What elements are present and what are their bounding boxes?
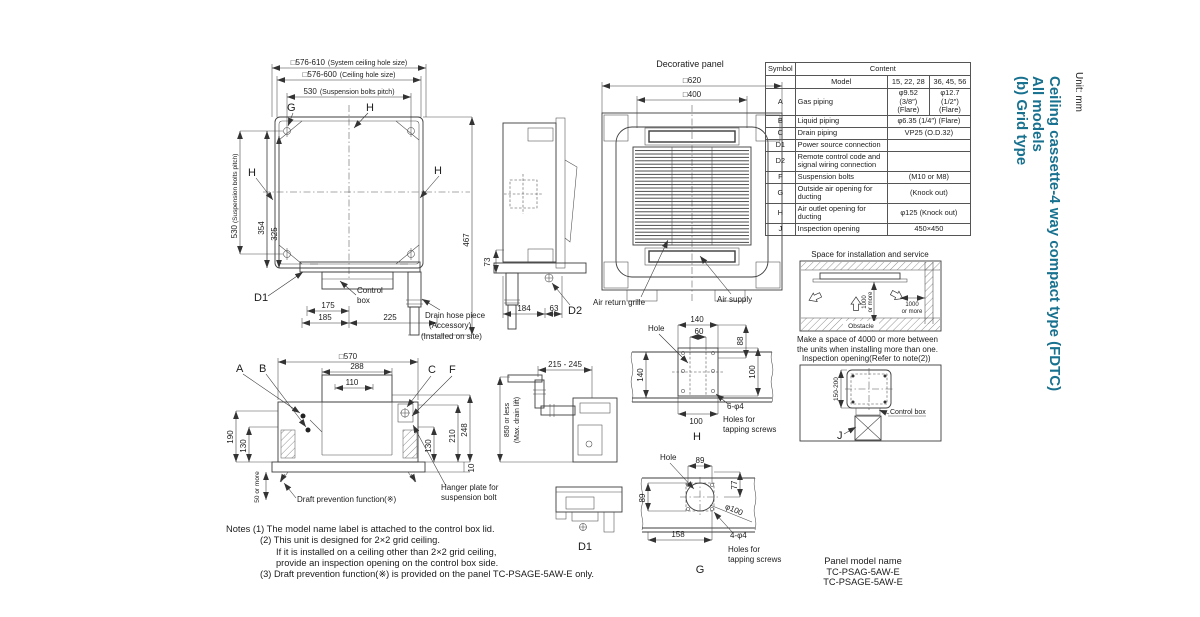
dim-400: □400 [683, 90, 702, 99]
decorative-panel-drawing: Decorative panel □620 □400 Air return gr… [593, 59, 782, 307]
svg-text:Holes for: Holes for [723, 415, 755, 424]
page-title: Ceiling cassette-4 way compact type (FDT… [1013, 76, 1063, 391]
g-knockout-detail: φ100 89 77 89 158 Hole 4-φ4 Holes for ta… [638, 453, 781, 576]
g-hole-label: Hole [660, 453, 677, 462]
svg-text:(Installed on site): (Installed on site) [421, 332, 482, 341]
spec-col-symbol: Symbol [766, 63, 796, 76]
spec-row-d1: D1 Power source connection [766, 139, 971, 151]
svg-text:suspension bolt: suspension bolt [441, 493, 497, 502]
dim-77: 77 [730, 480, 739, 489]
grille-louvers [635, 149, 749, 243]
panel-model-title: Panel model name [788, 556, 938, 567]
label-a: A [236, 363, 244, 375]
arrow-right [889, 288, 905, 302]
installation-space-diagram: Space for installation and service 1000 … [797, 250, 941, 354]
dim-60: 60 [695, 327, 704, 336]
svg-text:box: box [357, 296, 370, 305]
drain-lift-drawing: 215 - 245 850 or less (Max. drain lift) [500, 360, 617, 462]
section-view-drawing: □570 288 110 A B C F 190 130 130 210 [226, 352, 499, 504]
dim-354: 354 [257, 221, 266, 235]
dim-130-left: 130 [239, 439, 248, 453]
inspect-control-box-label: Control box [890, 409, 926, 416]
dim-pitch-vertical: 530(Suspension bolts pitch) [230, 154, 239, 239]
svg-text:or more: or more [902, 309, 923, 315]
drain-pipe-shape [406, 272, 423, 335]
control-box-label: Control [357, 286, 383, 295]
note-line: (2) This unit is designed for 2×2 grid c… [260, 535, 594, 546]
panel-model-name-block: Panel model name TC-PSAG-5AW-E TC-PSAGE-… [788, 556, 938, 588]
dim-10: 10 [467, 463, 476, 472]
unit-mm-label: Unit: mm [1073, 72, 1084, 112]
spec-row-f: F Suspension bolts (M10 or M8) [766, 171, 971, 183]
spec-col-content: Content [795, 63, 970, 76]
dim-phi-100: φ100 [724, 502, 745, 518]
dim-ceiling-hole: □576-600(Ceiling hole size) [303, 70, 396, 79]
side-body-outline [503, 123, 556, 262]
dim-bolts-pitch: 530(Suspension bolts pitch) [303, 87, 394, 96]
svg-text:Holes for: Holes for [728, 545, 760, 554]
notes-block: Notes (1) The model name label is attach… [226, 524, 594, 580]
spec-row-h: H Air outlet opening for ducting φ125 (K… [766, 203, 971, 223]
dim-184: 184 [517, 304, 531, 313]
dim-185: 185 [318, 313, 332, 322]
g-detail-label: G [696, 564, 705, 576]
dim-140-top: 140 [690, 315, 704, 324]
h-detail-label: H [693, 431, 701, 443]
spec-row-b: B Liquid piping φ6.35 (1/4″) (Flare) [766, 115, 971, 127]
air-return-label: Air return grille [593, 298, 646, 307]
dim-140-left: 140 [636, 368, 645, 382]
plan-view-drawing: □576-610(System ceiling hole size) □576-… [230, 58, 486, 341]
obstacle-label: Obstacle [848, 323, 874, 330]
inspect-title: Inspection opening(Refer to note(2)) [802, 354, 931, 363]
page-title-line2: All models [1029, 76, 1046, 391]
svg-text:tapping screws: tapping screws [723, 425, 776, 434]
dim-190: 190 [226, 430, 235, 444]
dim-130-right: 130 [424, 439, 433, 453]
label-h-left: H [248, 167, 256, 179]
svg-text:(Accessory): (Accessory) [429, 321, 472, 330]
inspection-opening-diagram: Inspection opening(Refer to note(2)) 150… [800, 354, 941, 442]
section-body-outline [278, 402, 418, 462]
dim-100-right: 100 [748, 365, 757, 379]
dim-225: 225 [383, 313, 397, 322]
arrow-up [851, 297, 861, 311]
dim-100-bottom: 100 [689, 417, 703, 426]
dim-620: □620 [683, 76, 702, 85]
dim-110: 110 [346, 378, 359, 387]
panel-model-1: TC-PSAG-5AW-E [788, 567, 938, 578]
dim-89-top: 89 [696, 456, 705, 465]
dim-73: 73 [483, 257, 492, 266]
dim-158: 158 [671, 530, 685, 539]
note-line: If it is installed on a ceiling other th… [276, 547, 594, 558]
page-title-line1: Ceiling cassette-4 way compact type (FDT… [1046, 76, 1063, 391]
dim-325: 325 [270, 227, 279, 241]
dim-215-245: 215 - 245 [548, 360, 582, 369]
page-title-line3: (b) Grid type [1013, 76, 1030, 391]
note-line: provide an inspection opening on the con… [276, 558, 594, 569]
svg-text:or more: or more [868, 291, 874, 312]
label-f: F [449, 364, 456, 376]
dim-248: 248 [460, 423, 469, 437]
dim-570: □570 [339, 352, 358, 361]
note-line: Notes (1) The model name label is attach… [226, 524, 594, 535]
h-hole-label: Hole [648, 324, 665, 333]
draft-prevention-label: Draft prevention function(※) [297, 495, 397, 504]
drain-hose-label: Drain hose piece [425, 311, 486, 320]
arrow-left [807, 291, 823, 305]
spec-row-d2: D2 Remote control code and signal wiring… [766, 151, 971, 171]
dim-850-max-drain: 850 or less [504, 402, 511, 437]
spec-table: Symbol Content Model 15, 22, 28 36, 45, … [765, 62, 971, 236]
dim-89-left: 89 [638, 493, 647, 502]
label-d1: D1 [254, 292, 268, 304]
note-line: (3) Draft prevention function(※) is prov… [260, 569, 594, 580]
h-screws-label: 6-φ4 [727, 402, 744, 411]
spec-row-a: A Gas piping φ9.52 (3/8″)(Flare) φ12.7 (… [766, 89, 971, 116]
panel-title: Decorative panel [656, 59, 724, 69]
label-h-right: H [434, 165, 442, 177]
dim-1000-horizontal: 1000 [905, 302, 919, 308]
dim-210: 210 [448, 429, 457, 443]
h-knockout-detail: 140 60 88 100 140 100 Hole 6-φ4 Holes fo… [631, 315, 776, 443]
label-g: G [287, 102, 296, 114]
drain-unit-shape [573, 398, 617, 462]
dim-175: 175 [321, 301, 335, 310]
install-caption: Make a space of 4000 or more between [797, 335, 938, 344]
dim-system-hole: □576-610(System ceiling hole size) [291, 58, 408, 67]
spec-row-j: J Inspection opening 450×450 [766, 223, 971, 235]
install-title: Space for installation and service [811, 250, 929, 259]
svg-text:(Max. drain lift): (Max. drain lift) [514, 397, 521, 443]
dim-150-200: 150-200 [833, 377, 840, 401]
catalog-page: □576-610(System ceiling hole size) □576-… [0, 0, 1200, 617]
label-h-top: H [366, 102, 374, 114]
hanger-plate-label: Hanger plate for [441, 483, 499, 492]
svg-text:tapping screws: tapping screws [728, 555, 781, 564]
dim-288: 288 [350, 362, 364, 371]
spec-row-c: C Drain piping VP25 (O.D.32) [766, 127, 971, 139]
side-view-drawing: D2 73 184 63 [483, 118, 586, 329]
dim-88: 88 [736, 336, 745, 345]
air-supply-label: Air supply [717, 295, 752, 304]
label-j: J [837, 430, 843, 442]
dim-63: 63 [550, 304, 559, 313]
label-c: C [428, 364, 436, 376]
svg-text:the units when installing more: the units when installing more than one. [797, 345, 938, 354]
dim-50-or-more: 50 or more [254, 471, 261, 503]
label-d2: D2 [568, 305, 582, 317]
pipe-bar [300, 262, 420, 272]
spec-row-g: G Outside air opening for ducting (Knock… [766, 183, 971, 203]
dim-467: 467 [462, 233, 471, 247]
label-b: B [259, 363, 266, 375]
panel-model-2: TC-PSAGE-5AW-E [788, 577, 938, 588]
